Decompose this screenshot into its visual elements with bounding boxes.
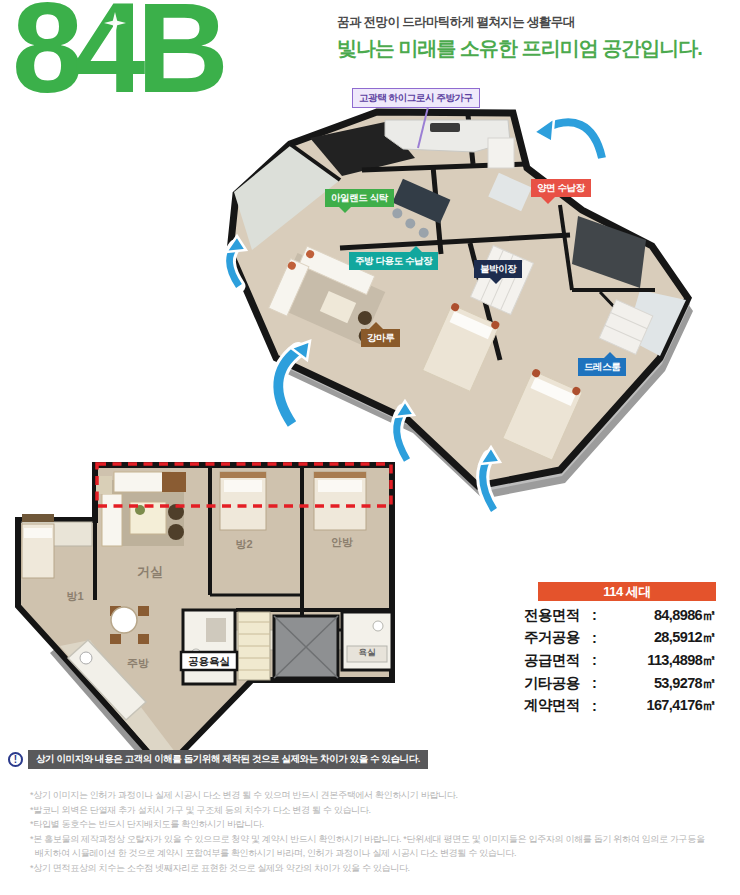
bed — [22, 514, 54, 578]
area-row-colon: : — [588, 652, 600, 668]
area-row-value: 84,8986㎡ — [600, 606, 718, 625]
room-label-shared-bath: 공용욕실 — [188, 655, 230, 667]
room-label-master: 안방 — [331, 536, 353, 548]
tagline-small: 꿈과 전망이 드라마틱하게 펼쳐지는 생활무대 — [337, 14, 702, 31]
page: 84B 꿈과 전망이 드라마틱하게 펼쳐지는 생활무대 빛나는 미래를 소유한 … — [0, 0, 740, 895]
room-label-living: 거실 — [137, 564, 163, 579]
disclaimer-line: *상기 이미지는 인허가 과정이나 실제 시공시 다소 변경 될 수 있으며 반… — [30, 788, 738, 803]
sofa-set — [96, 472, 186, 546]
area-table: 114 세대 전용면적 : 84,8986㎡ 주거공용 : 28,5912㎡ 공… — [520, 582, 718, 717]
area-row: 계약면적 : 167,4176㎡ — [520, 694, 718, 717]
area-row-value: 167,4176㎡ — [600, 696, 718, 715]
area-row-label: 전용면적 — [520, 606, 588, 625]
area-row-colon: : — [588, 607, 600, 623]
disclaimer-line: *본 홍보물의 제작과정상 오탈자가 있을 수 있으므로 청약 및 계약시 반드… — [30, 832, 738, 847]
room-label-room1: 방1 — [66, 590, 83, 602]
disclaimer-line: *상기 면적표상의 치수는 소수점 넷째자리로 표현한 것으로 실제와 약간의 … — [30, 861, 738, 876]
label-hardwood-floor: 강마루 — [361, 329, 400, 347]
area-row-colon: : — [588, 675, 600, 691]
room-label-kitchen: 주방 — [127, 657, 149, 669]
bed — [220, 472, 266, 530]
room-label-room2: 방2 — [235, 538, 252, 550]
area-row: 전용면적 : 84,8986㎡ — [520, 604, 718, 627]
disclaimer-line: *타입별 동호수는 반드시 단지배치도를 확인하시기 바랍니다. — [30, 817, 738, 832]
bed — [314, 472, 366, 530]
area-row-label: 기타공용 — [520, 674, 588, 693]
cooktop — [430, 123, 460, 132]
area-row: 공급면적 : 113,4898㎡ — [520, 649, 718, 672]
area-row-value: 113,4898㎡ — [600, 651, 718, 670]
tagline-main: 빛나는 미래를 소유한 프리미엄 공간입니다. — [337, 35, 702, 62]
label-built-in-closet: 붙박이장 — [474, 260, 522, 278]
label-kitchen-furniture: 고광택 하이그로시 주방가구 — [352, 88, 480, 108]
notice-text: 상기 이미지와 내용은 고객의 이해를 돕기위해 제작된 것으로 실제와는 차이… — [28, 750, 428, 769]
toilet — [373, 621, 383, 631]
airflow-arrow-icon — [278, 341, 310, 424]
unit-floorplan-2d: 거실 방2 안방 방1 주방 욕실 공용욕실 — [10, 450, 460, 768]
exclamation-icon: ! — [8, 752, 23, 767]
label-kitchen-utility-storage: 주방 다용도 수납장 — [349, 252, 438, 270]
area-row-label: 계약면적 — [520, 696, 588, 715]
area-row-colon: : — [588, 698, 600, 714]
area-table-rows: 전용면적 : 84,8986㎡ 주거공용 : 28,5912㎡ 공급면적 : 1… — [520, 604, 718, 717]
taglines: 꿈과 전망이 드라마틱하게 펼쳐지는 생활무대 빛나는 미래를 소유한 프리미엄… — [337, 14, 702, 62]
area-row: 기타공용 : 53,9278㎡ — [520, 672, 718, 695]
area-table-header: 114 세대 — [538, 582, 716, 601]
disclaimer-line: *발코니 외벽은 단열재 추가 설치시 가구 및 구조체 등의 치수가 다소 변… — [30, 803, 738, 818]
disclaimer-list: *상기 이미지는 인허가 과정이나 실제 시공시 다소 변경 될 수 있으며 반… — [30, 788, 738, 875]
area-row-label: 주거공용 — [520, 628, 588, 647]
area-row-colon: : — [588, 630, 600, 646]
label-two-way-storage: 양면 수납장 — [531, 179, 591, 197]
notice-bar: ! 상기 이미지와 내용은 고객의 이해를 돕기위해 제작된 것으로 실제와는 … — [8, 750, 428, 769]
label-island-table: 아일랜드 식탁 — [325, 189, 394, 207]
sink — [80, 652, 92, 664]
area-row-value: 53,9278㎡ — [600, 674, 718, 693]
area-row: 주거공용 : 28,5912㎡ — [520, 627, 718, 650]
airflow-arrow-icon — [534, 118, 602, 158]
room-label-bath: 욕실 — [359, 647, 376, 657]
label-dress-room: 드레스룸 — [578, 358, 626, 376]
disclaimer-line: 배치하여 시뮬레이션 한 것으로 계약시 포함여부를 확인하시기 바라며, 인허… — [30, 846, 738, 861]
area-row-value: 28,5912㎡ — [600, 628, 718, 647]
washer — [206, 618, 226, 642]
area-row-label: 공급면적 — [520, 651, 588, 670]
